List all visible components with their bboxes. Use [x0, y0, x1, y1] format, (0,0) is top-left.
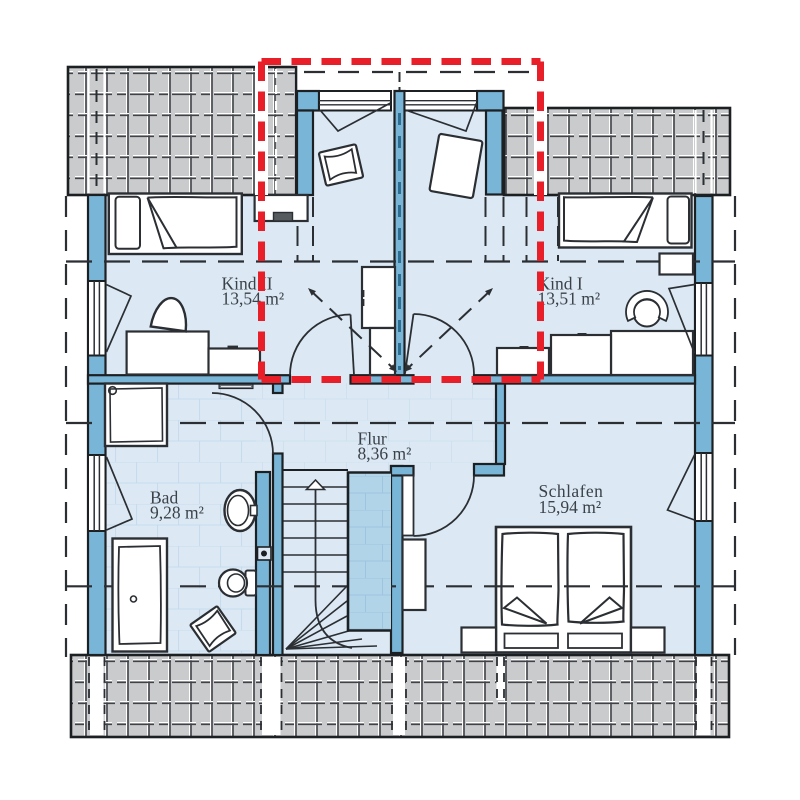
svg-text:8,36 m²: 8,36 m²	[358, 444, 412, 464]
svg-text:13,54 m²: 13,54 m²	[222, 289, 285, 309]
svg-text:9,28 m²: 9,28 m²	[150, 503, 204, 523]
svg-text:15,94 m²: 15,94 m²	[539, 497, 602, 517]
svg-text:13,51 m²: 13,51 m²	[538, 289, 601, 309]
